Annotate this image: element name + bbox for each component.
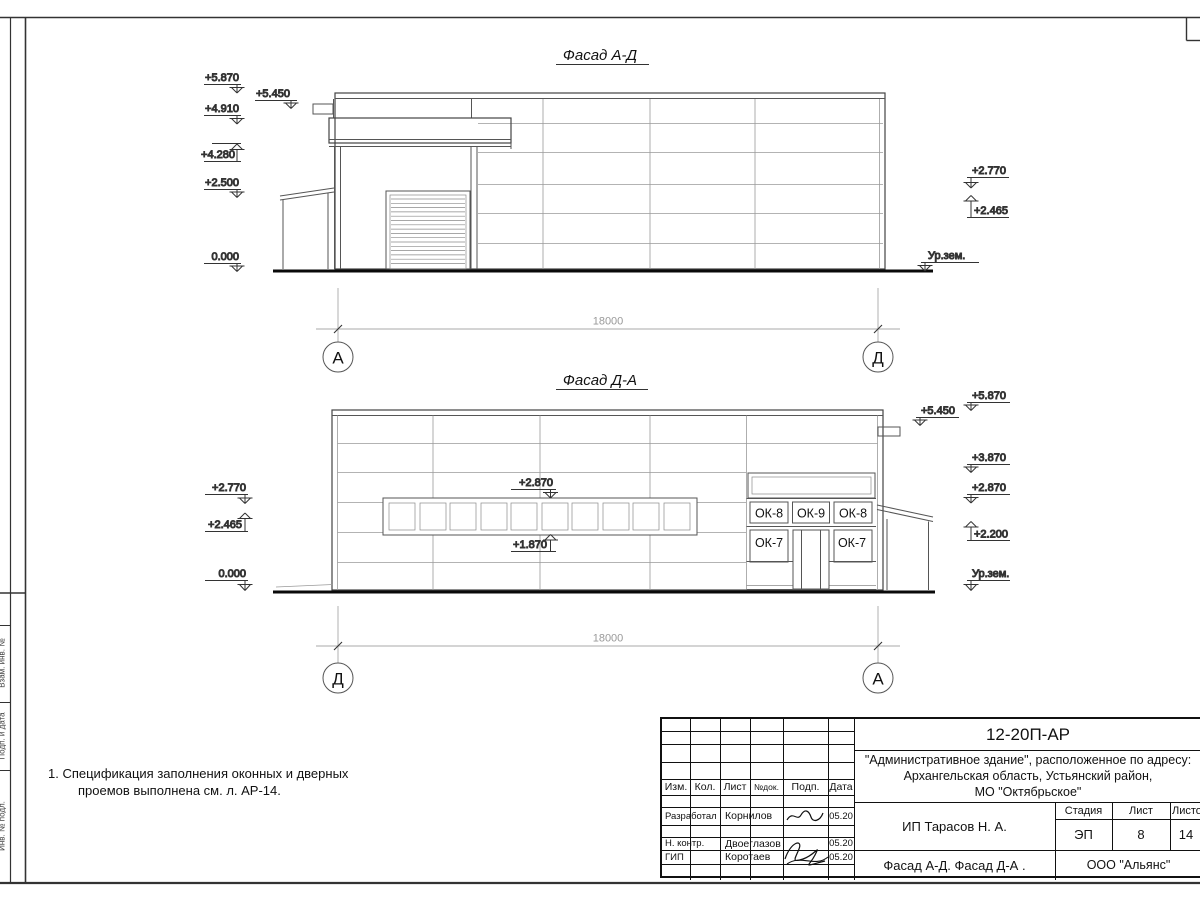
svg-text:+5.870: +5.870 [972,390,1006,402]
row-name: Коротаев [722,850,787,864]
elevation-mark-band-bottom: +1.870 [511,535,558,552]
roof-pipe [878,427,900,436]
ribbon-window-band [383,498,697,535]
svg-text:+5.870: +5.870 [205,72,239,84]
ground-level-mark-f1: Ур.зем. [918,250,980,271]
title-block: Изм. Кол. Лист №док. Подп. Дата Разработ… [660,717,1200,878]
sheets-total: 14 [1170,819,1200,850]
dimension-value: 18000 [593,316,624,328]
svg-text:+2.870: +2.870 [972,482,1006,494]
project-line2: Архангельская область, Устьянский район, [854,768,1200,784]
facade2-leanto [877,505,933,590]
elevation-mark-band-top: +2.870 [511,477,558,498]
svg-text:+2.770: +2.770 [212,482,246,494]
stage-value: ЭП [1055,819,1112,850]
col-header-ndoc: №док. [750,779,783,795]
client-name: ИП Тарасов Н. А. [854,802,1055,850]
row-role: Н. контр. [662,837,723,850]
axis-letter-d: Д [872,349,884,368]
svg-text:+5.450: +5.450 [921,405,955,417]
col-header-list: Лист [720,779,750,795]
note-line2: проемов выполнена см. л. АР-14. [78,782,348,799]
facade2-dimension: 18000 Д А [316,606,900,693]
elevation-mark-2870-f2: +2.870 [964,482,1011,503]
facade1-dimension: 18000 А Д [316,288,900,372]
svg-text:0.000: 0.000 [211,251,239,263]
svg-text:+4.280: +4.280 [201,149,235,161]
window-label: ОК-8 [755,507,783,521]
svg-text:Ур.зем.: Ур.зем. [972,568,1009,580]
roof-pipe [313,104,333,114]
col-header-data: Дата [828,779,854,795]
facade1-building [273,93,933,271]
sheet-label: Лист [1112,802,1170,819]
elevation-mark-5870: +5.870 [204,72,245,93]
elevation-mark-4280: +4.280 [201,144,244,162]
elevation-mark-0000-f2: 0.000 [205,568,253,591]
elevation-mark-3870-f2: +3.870 [964,452,1011,473]
svg-text:+3.870: +3.870 [972,452,1006,464]
svg-text:+2.870: +2.870 [519,477,553,489]
signature-scribble [785,808,825,825]
organization-name: ООО "Альянс" [1055,850,1200,880]
svg-text:+2.500: +2.500 [205,177,239,189]
elevation-mark-2465-f1: +2.465 [964,196,1010,218]
elevation-mark-5450-f2: +5.450 [913,405,960,426]
axis-letter-a: А [332,349,344,368]
rollup-door [386,191,470,269]
elevation-mark-0000: 0.000 [204,251,245,272]
elevation-mark-2770-f2: +2.770 [205,482,253,504]
entrance-portal: ОК-8 ОК-9 ОК-8 ОК-7 ОК-7 [747,473,877,590]
signature-scribble [781,833,833,869]
drawing-sheet: Взам. инв. № Подп. и дата Инв. № подл. Ф… [0,0,1200,900]
dimension-value: 18000 [593,633,624,645]
project-line1: "Административное здание", расположенное… [854,752,1200,768]
facade2-title: Фасад Д-А [563,372,637,389]
svg-text:+2.200: +2.200 [974,529,1008,541]
side-label-podp: Подп. и дата [0,712,7,760]
row-date: 05.20 [828,807,854,825]
note-line1: 1. Спецификация заполнения оконных и две… [48,765,348,782]
row-name: Корнилов [722,807,785,825]
col-header-izm: Изм. [662,779,690,795]
entrance-door [793,530,829,589]
sheet-note: 1. Спецификация заполнения оконных и две… [48,765,348,799]
elevation-mark-2200-f2: +2.200 [964,522,1011,541]
svg-text:+2.770: +2.770 [972,165,1006,177]
facade-a-d: Фасад А-Д [201,47,1009,372]
project-line3: МО "Октябрьское" [854,784,1200,800]
svg-text:+4.910: +4.910 [205,103,239,115]
svg-text:+1.870: +1.870 [513,539,547,551]
elevation-mark-5450: +5.450 [255,88,299,109]
svg-text:+2.465: +2.465 [974,205,1008,217]
col-header-podp: Подп. [783,779,828,795]
row-role: Разработал [662,807,723,825]
svg-text:+5.450: +5.450 [256,88,290,100]
elevation-mark-4910: +4.910 [204,103,245,124]
window-label: ОК-7 [838,536,866,550]
elevation-mark-2465-f2: +2.465 [205,513,253,532]
sheets-label: Листов [1170,802,1200,819]
axis-letter-d: Д [332,670,344,689]
row-role: ГИП [662,850,723,864]
axis-letter-a: А [872,670,884,689]
window-label: ОК-7 [755,536,783,550]
window-label: ОК-8 [839,507,867,521]
elevation-mark-2770-f1: +2.770 [964,165,1010,188]
facade2-building: ОК-8 ОК-9 ОК-8 ОК-7 ОК-7 [273,410,935,592]
facade-d-a: Фасад Д-А [205,372,1010,693]
sheet-title: Фасад А-Д. Фасад Д-А . [854,850,1055,880]
svg-text:+2.465: +2.465 [208,519,242,531]
facade1-title: Фасад А-Д [563,47,638,64]
window-label: ОК-9 [797,507,825,521]
col-header-kol: Кол. [690,779,720,795]
svg-text:0.000: 0.000 [218,568,246,580]
row-name: Двоеглазов [722,837,787,850]
side-label-vzam: Взам. инв. № [0,638,7,688]
ground-level-mark-f2: Ур.зем. [964,568,1011,591]
stage-label: Стадия [1055,802,1112,819]
elevation-mark-2500: +2.500 [204,177,245,198]
facade1-leanto [280,188,334,269]
svg-text:Ур.зем.: Ур.зем. [928,250,965,262]
sheet-number: 8 [1112,819,1170,850]
elevation-mark-5870-f2: +5.870 [964,390,1011,411]
side-label-inv: Инв. № подл. [0,801,7,851]
document-code: 12-20П-АР [854,719,1200,750]
